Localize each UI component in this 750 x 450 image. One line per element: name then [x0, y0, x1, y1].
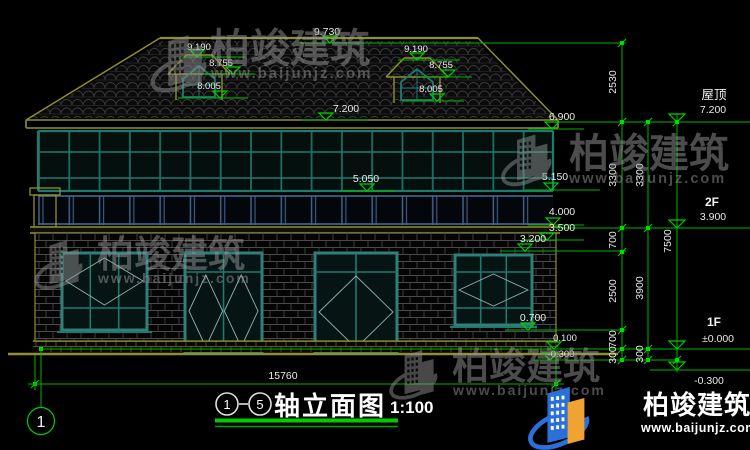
watermark-left-url: www.baijunjz.com	[97, 270, 251, 286]
dim-15760: 15760	[268, 370, 297, 382]
level-dormer-right-eave: 8.755	[429, 60, 453, 71]
watermark-bottom: 柏竣建筑 www.baijunjz.com	[387, 345, 606, 404]
dim-700-upper: 700	[607, 231, 619, 249]
floor-band-fill	[30, 227, 560, 233]
title-axis-end: 5	[256, 397, 263, 412]
brand-logo-name: 柏竣建筑	[643, 390, 750, 420]
level-4000: 4.000	[549, 206, 575, 218]
level-dormer-right-top: 9.190	[404, 44, 428, 55]
floor-2f-elev: 3.900	[700, 211, 726, 223]
glazing-mullions	[38, 131, 553, 191]
railing-band	[30, 188, 553, 227]
dim-700-lower: 700	[607, 330, 619, 348]
french-window	[315, 253, 397, 352]
cad-viewport: 9.730 9.190 8.755 8.005 9.190 8.755 8.00…	[0, 0, 750, 450]
watermark-bottom-icon	[387, 350, 440, 404]
level-eave: 6.900	[549, 111, 575, 123]
title-axis-start: 1	[223, 397, 230, 412]
brand-logo: 柏竣建筑 www.baijunjz.com	[525, 387, 750, 450]
level-5050: 5.050	[353, 173, 379, 185]
dim-2500: 2500	[607, 279, 619, 303]
dim-7500-total: 7500	[662, 229, 674, 253]
floor-1f-elev: ±0.000	[702, 333, 734, 345]
floor-roof-name: 屋顶	[701, 88, 727, 102]
watermark-bottom-url: www.baijunjz.com	[452, 382, 606, 398]
level-dormer-right-sill: 8.005	[419, 84, 443, 95]
floor-band	[30, 227, 560, 233]
level-0100: 0.100	[553, 333, 577, 344]
elevation-drawing: 9.730 9.190 8.755 8.005 9.190 8.755 8.00…	[0, 0, 750, 450]
watermark-top-url: www.baijunjz.com	[210, 65, 372, 82]
dim-300-inner: 300	[607, 346, 619, 364]
floor-2f-name: 2F	[705, 195, 719, 209]
watermark-left-brand: 柏竣建筑	[97, 233, 245, 275]
title-name: 轴立面图	[274, 391, 386, 421]
watermark-left: 柏竣建筑 www.baijunjz.com	[32, 233, 251, 294]
watermark-bottom-brand: 柏竣建筑	[452, 345, 600, 387]
level-3500: 3.500	[549, 222, 575, 234]
axis-bubble-1: 1	[28, 349, 55, 435]
dim-chain-texts: 2530 3300 700 2500 700 300 3300 3900 300…	[607, 70, 674, 364]
dim-3900: 3900	[634, 276, 646, 300]
level-3200: 3.200	[520, 233, 546, 245]
watermark-right-brand: 柏竣建筑	[569, 132, 729, 176]
axis-bubble-number: 1	[37, 414, 46, 431]
title-scale: 1:100	[390, 398, 433, 417]
roof-eave-fascia	[26, 120, 558, 128]
brand-logo-url: www.baijunjz.com	[640, 421, 750, 435]
floor-below-elev: -0.300	[694, 375, 724, 387]
railing-posts	[38, 196, 553, 225]
curtain-wall-2f	[38, 131, 553, 191]
watermark-right-url: www.baijunjz.com	[568, 171, 726, 187]
dim-2530: 2530	[607, 70, 619, 94]
floor-roof-elev: 7.200	[700, 104, 726, 116]
floor-1f-name: 1F	[707, 315, 721, 329]
level-0700: 0.700	[520, 312, 546, 324]
dim-300-middle: 300	[634, 345, 646, 363]
level-roof: 7.200	[333, 103, 359, 115]
